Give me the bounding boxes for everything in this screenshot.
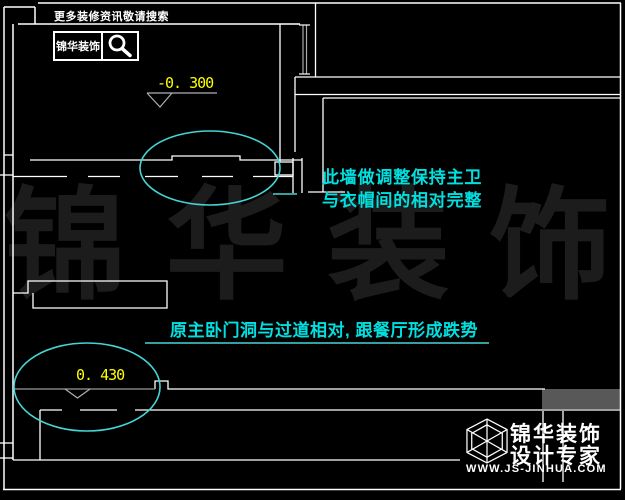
cad-canvas: 锦 华 装 饰	[0, 0, 625, 500]
annotation-door-note: 原主卧门洞与过道相对, 跟餐厅形成跌势	[170, 316, 478, 341]
cube-logo-icon	[466, 418, 508, 464]
elevation-marker-bottom-icon	[65, 389, 90, 398]
elevation-value-top: -0. 300	[157, 74, 213, 92]
brand-label: 锦华装饰	[56, 38, 100, 54]
logo-website: WWW.JS-JINHUA.COM	[466, 463, 607, 475]
search-box	[103, 31, 139, 61]
search-icon	[105, 33, 135, 59]
elevation-value-bottom: 0. 430	[76, 366, 124, 384]
annotation-wall-note-line1: 此墙做调整保持主卫	[322, 166, 482, 189]
annotation-wall-note-line2: 与衣帽间的相对完整	[322, 189, 482, 212]
gray-block	[542, 389, 621, 409]
window-symbol	[299, 25, 310, 74]
outer-walls	[3, 3, 621, 490]
promo-text: 更多装修资讯敬请搜索	[54, 8, 169, 24]
highlight-ellipse-top	[140, 131, 280, 205]
elevation-marker-top-icon	[147, 93, 217, 107]
brand-box: 锦华装饰	[53, 31, 103, 61]
highlight-ellipse-bottom	[14, 343, 160, 431]
annotation-wall-note: 此墙做调整保持主卫 与衣帽间的相对完整	[322, 166, 482, 212]
